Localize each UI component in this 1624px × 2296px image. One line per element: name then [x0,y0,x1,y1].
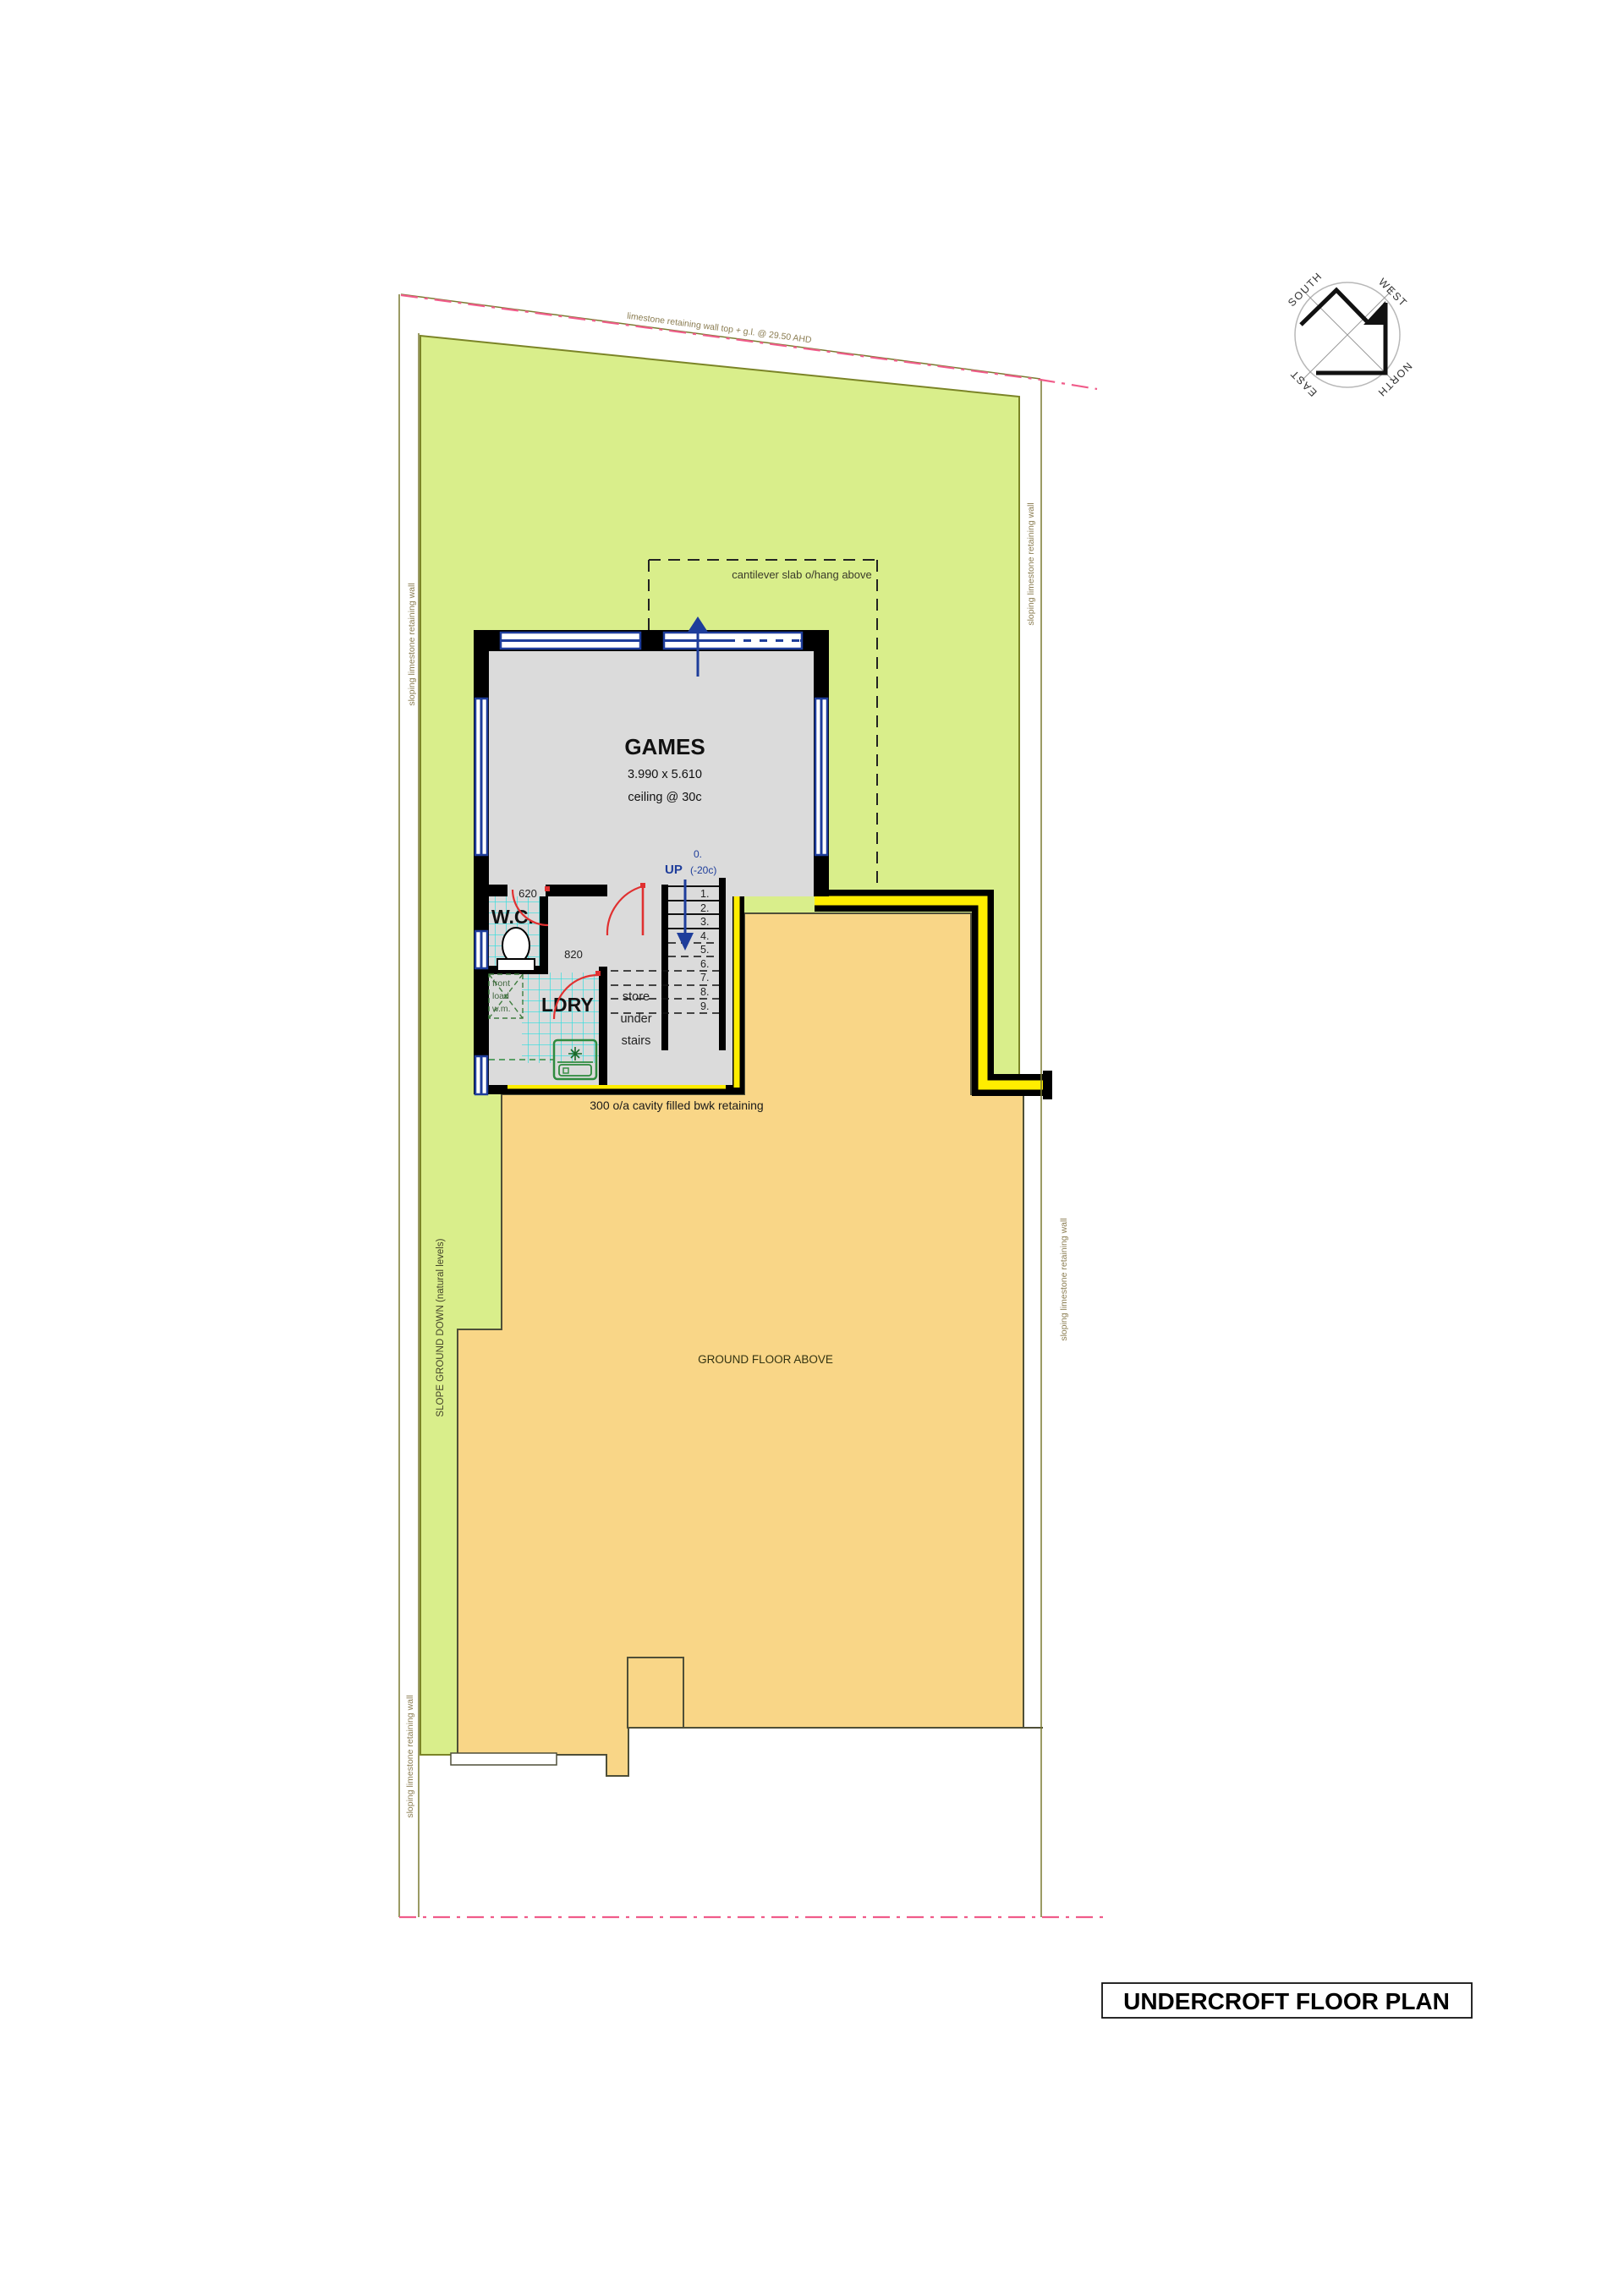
svg-text:9.: 9. [700,1000,709,1012]
ldry-tiles [522,973,599,1063]
store-under-stairs-label: store under stairs [620,990,651,1048]
svg-text:stairs: stairs [622,1034,651,1048]
games-room-dims: 3.990 x 5.610 [628,768,702,781]
ldry-door-width: 820 [564,948,583,961]
compass-west-label: WEST [1376,276,1410,310]
boundary-right-label-upper: sloping limestone retaining wall [1026,502,1036,625]
washing-machine-label: front load w.m. [491,978,511,1014]
floor-plan-page: GROUND FLOOR ABOVE 300 o/a cavity filled… [0,0,1624,2296]
svg-text:2.: 2. [700,902,709,914]
svg-text:front: front [492,978,510,989]
page-title: UNDERCROFT FLOOR PLAN [1123,1988,1450,2014]
svg-text:1.: 1. [700,888,709,900]
svg-text:8.: 8. [700,986,709,998]
ldry-room-label: LDRY [541,994,594,1016]
games-room-ceiling: ceiling @ 30c [628,791,701,804]
compass-east-label: EAST [1288,367,1319,398]
svg-text:6.: 6. [700,958,709,970]
compass-rose: SOUTH WEST EAST NORTH [1286,270,1414,399]
svg-text:4.: 4. [700,930,709,942]
compass-north-label: NORTH [1375,360,1414,399]
wc-room-label: W.C. [491,906,534,928]
window-left-low [475,1056,487,1094]
stairs-start-label: 0. [694,848,702,860]
title-block: UNDERCROFT FLOOR PLAN [1102,1983,1472,2018]
window-top-1 [501,633,640,649]
games-room-label: GAMES [624,734,705,759]
svg-text:under: under [620,1012,651,1026]
stair-tread-numbers: 1. 2. 3. 4. 5. 6. 7. 8. 9. [700,888,709,1012]
svg-text:load: load [492,991,509,1001]
window-left-mid [475,931,487,968]
svg-text:w.m.: w.m. [491,1004,511,1014]
slope-ground-label: SLOPE GROUND DOWN (natural levels) [436,1238,446,1417]
cantilever-label: cantilever slab o/hang above [732,568,872,581]
window-top-2 [664,633,802,649]
window-right-tall [815,699,827,855]
stairs-level-label: (-20c) [690,864,716,876]
boundary-left-label-lower: sloping limestone retaining wall [405,1695,415,1817]
window-left-tall [475,699,487,855]
svg-text:store: store [623,990,650,1004]
ground-floor-label: GROUND FLOOR ABOVE [698,1353,833,1366]
wc-door-width: 620 [518,887,537,900]
boundary-right-label-lower: sloping limestone retaining wall [1059,1218,1069,1340]
svg-text:3.: 3. [700,916,709,928]
boundary-left-label-upper: sloping limestone retaining wall [407,583,417,705]
retaining-note-label: 300 o/a cavity filled bwk retaining [590,1099,763,1112]
slab-edge-step [451,1753,557,1765]
floor-plan-canvas: GROUND FLOOR ABOVE 300 o/a cavity filled… [0,0,1624,2296]
svg-text:5.: 5. [700,944,709,956]
games-room: GAMES 3.990 x 5.610 ceiling @ 30c [624,734,705,804]
stairs-up-label: UP [665,863,683,877]
svg-text:7.: 7. [700,972,709,984]
